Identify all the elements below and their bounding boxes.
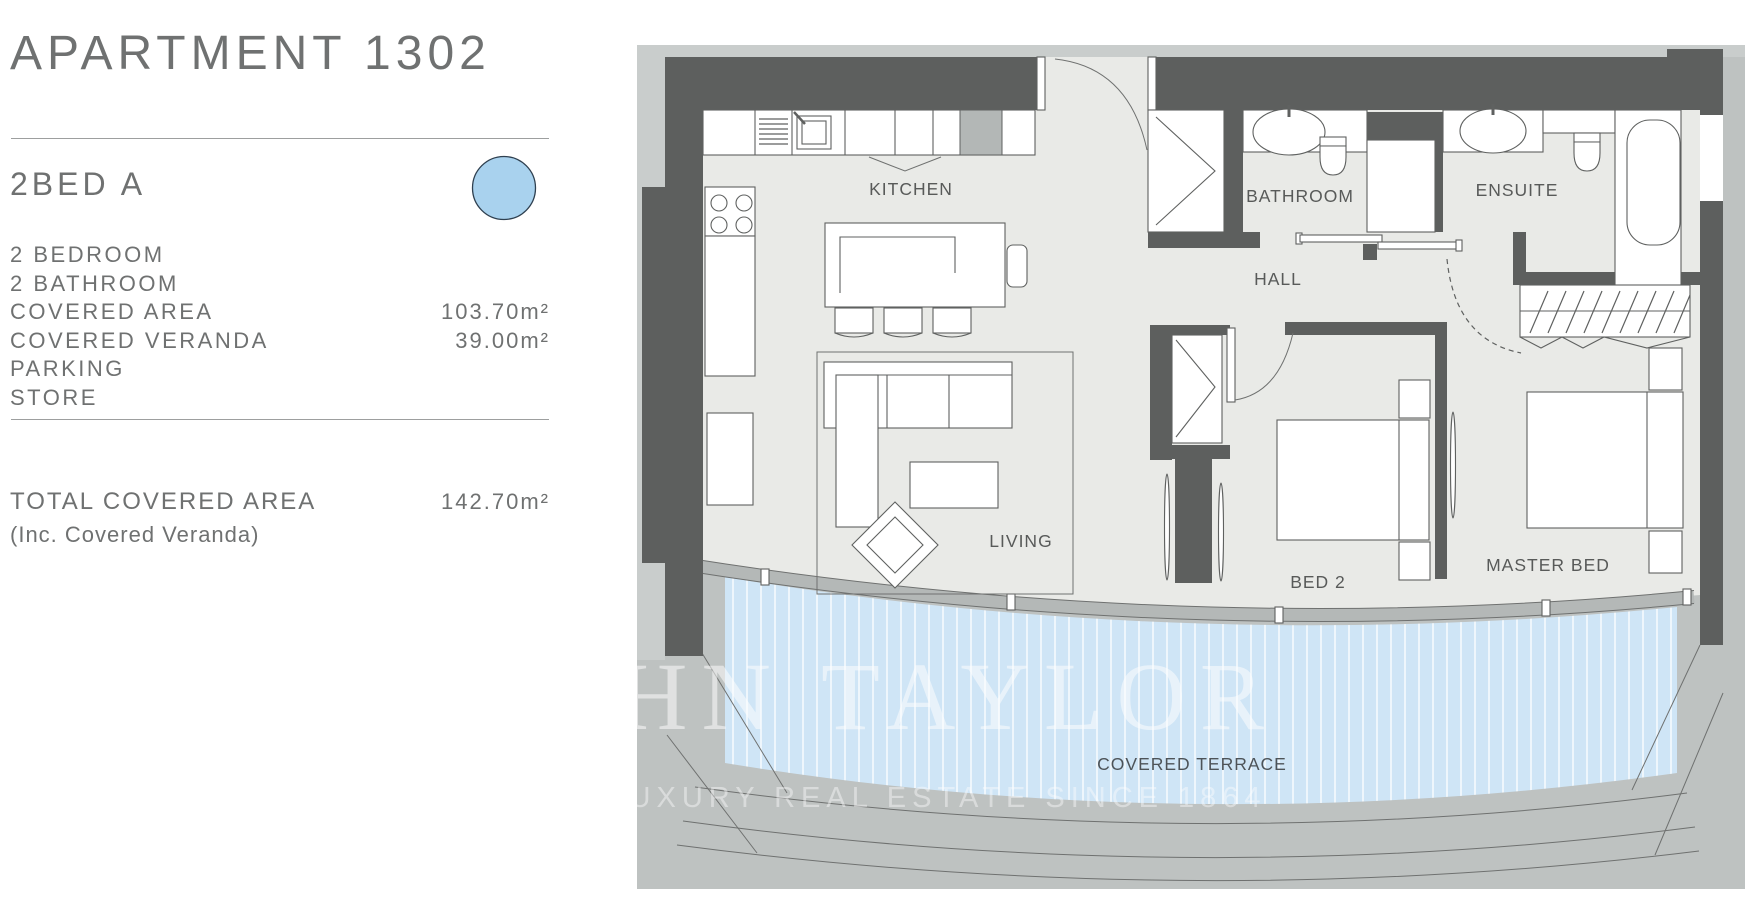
total-note: (Inc. Covered Veranda) bbox=[10, 522, 259, 548]
spec-row: COVERED VERANDA 39.00m² bbox=[10, 328, 550, 357]
spec-row: PARKING bbox=[10, 356, 550, 385]
watermark-line2: LUXURY REAL ESTATE SINCE 1864 bbox=[637, 782, 1267, 814]
spec-label: 2 BEDROOM bbox=[10, 242, 165, 268]
room-label-living: LIVING bbox=[989, 531, 1052, 551]
bathtub-icon bbox=[1627, 120, 1680, 245]
window-gap bbox=[1700, 115, 1723, 201]
nightstand bbox=[1399, 542, 1430, 580]
toilet-icon bbox=[1574, 133, 1600, 171]
unit-name: 2BED A bbox=[10, 166, 146, 203]
room-label-terrace: COVERED TERRACE bbox=[1097, 754, 1287, 774]
room-label-bed2: BED 2 bbox=[1290, 572, 1346, 592]
info-panel: APARTMENT 1302 2BED A 2 BEDROOM 2 BATHRO… bbox=[0, 0, 600, 915]
room-label-hall: HALL bbox=[1254, 269, 1302, 289]
bed2-door-leaf bbox=[1227, 328, 1235, 402]
spec-label: STORE bbox=[10, 385, 98, 411]
total-value: 142.70m² bbox=[441, 489, 550, 515]
spec-row: 2 BATHROOM bbox=[10, 271, 550, 300]
page-title: APARTMENT 1302 bbox=[10, 26, 491, 81]
floor-plan: HN TAYLOR LUXURY REAL ESTATE SINCE 1864 … bbox=[637, 45, 1745, 889]
nightstand bbox=[1399, 380, 1430, 418]
spec-list: 2 BEDROOM 2 BATHROOM COVERED AREA 103.70… bbox=[10, 242, 550, 413]
spec-value: 39.00m² bbox=[455, 328, 550, 354]
spec-value: 103.70m² bbox=[441, 299, 550, 325]
master-bed bbox=[1527, 392, 1683, 528]
dot-circle bbox=[473, 157, 536, 220]
spec-row: COVERED AREA 103.70m² bbox=[10, 299, 550, 328]
divider-top bbox=[11, 138, 549, 139]
unit-color-dot bbox=[471, 155, 537, 221]
room-label-kitchen: KITCHEN bbox=[869, 179, 953, 199]
appliance-block bbox=[960, 110, 1002, 155]
bed2-bed bbox=[1277, 420, 1429, 540]
kitchen-sink-icon bbox=[794, 112, 831, 149]
spec-label: 2 BATHROOM bbox=[10, 271, 179, 297]
tall-kitchen-unit bbox=[705, 236, 755, 376]
shower-closet bbox=[1367, 140, 1435, 232]
total-row: TOTAL COVERED AREA 142.70m² bbox=[10, 488, 550, 516]
divider-bottom bbox=[11, 419, 549, 420]
watermark: HN TAYLOR LUXURY REAL ESTATE SINCE 1864 bbox=[637, 643, 1278, 814]
nightstand bbox=[1649, 531, 1682, 573]
watermark-line1: HN TAYLOR bbox=[637, 643, 1278, 750]
kitchen-island bbox=[825, 223, 1027, 307]
hob-icon bbox=[705, 187, 755, 236]
spec-label: PARKING bbox=[10, 356, 125, 382]
spec-row: 2 BEDROOM bbox=[10, 242, 550, 271]
room-label-master: MASTER BED bbox=[1486, 555, 1610, 575]
spec-label: COVERED AREA bbox=[10, 299, 214, 325]
room-label-ensuite: ENSUITE bbox=[1476, 180, 1559, 200]
room-label-bathroom: BATHROOM bbox=[1246, 186, 1354, 206]
coffee-table bbox=[910, 462, 998, 508]
nightstand bbox=[1649, 348, 1682, 390]
spec-label: COVERED VERANDA bbox=[10, 328, 269, 354]
bar-stools bbox=[835, 308, 971, 337]
floor-plan-svg: HN TAYLOR LUXURY REAL ESTATE SINCE 1864 … bbox=[637, 45, 1745, 889]
side-storage-unit bbox=[707, 413, 753, 505]
toilet-icon bbox=[1320, 137, 1346, 175]
island-side-chair bbox=[1007, 245, 1027, 287]
total-label: TOTAL COVERED AREA bbox=[10, 488, 316, 516]
spec-row: STORE bbox=[10, 385, 550, 414]
